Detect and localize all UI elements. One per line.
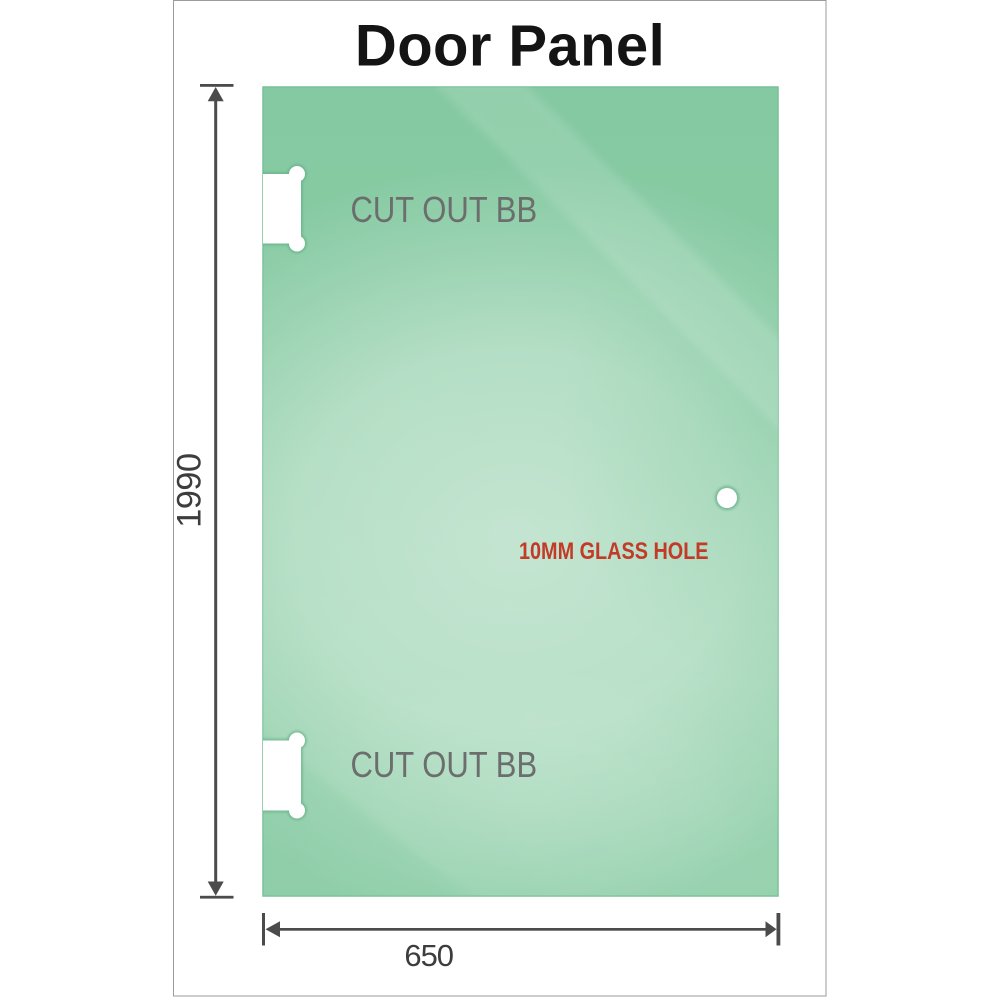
svg-text:CUT OUT BB: CUT OUT BB <box>351 745 538 786</box>
svg-text:CUT OUT BB: CUT OUT BB <box>351 190 538 231</box>
svg-text:10MM GLASS HOLE: 10MM GLASS HOLE <box>519 537 709 564</box>
svg-text:1990: 1990 <box>171 454 209 528</box>
svg-text:Door Panel: Door Panel <box>355 13 665 78</box>
svg-text:650: 650 <box>404 938 453 973</box>
